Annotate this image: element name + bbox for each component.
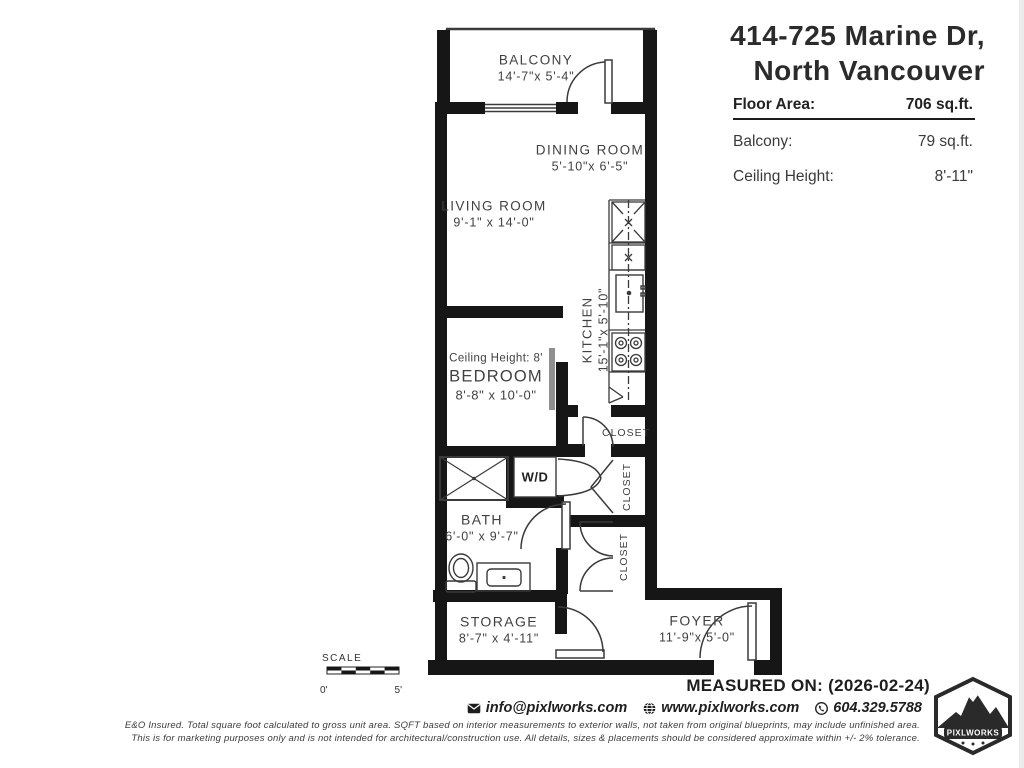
shower xyxy=(440,457,508,500)
room-label-bedroom: Ceiling Height: 8' BEDROOM 8'-8" x 10'-0… xyxy=(449,351,543,404)
room-label-kitchen: KITCHEN 15'-1"x 5'-10" xyxy=(579,288,612,373)
logo-text: PIXLWORKS xyxy=(947,729,1000,738)
scale-label: SCALE xyxy=(318,653,404,664)
floor-area-label: Floor Area: xyxy=(733,96,815,114)
room-name: KITCHEN xyxy=(579,288,596,373)
closet-label-1: CLOSET xyxy=(602,427,650,439)
phone-icon xyxy=(815,702,828,715)
ceiling-height-label: Ceiling Height: xyxy=(733,168,834,186)
closet-label-2: CLOSET xyxy=(621,463,633,511)
ceiling-note: Ceiling Height: 8' xyxy=(449,351,543,367)
room-label-balcony: BALCONY 14'-7"x 5'-4" xyxy=(498,52,575,85)
website-item: www.pixlworks.com xyxy=(643,700,799,716)
room-name: LIVING ROOM xyxy=(441,198,546,215)
room-name: DINING ROOM xyxy=(536,142,644,159)
room-name: BALCONY xyxy=(498,52,575,69)
floor-area-value: 706 sq.ft. xyxy=(906,96,973,114)
floor-area-row: Floor Area: 706 sq.ft. xyxy=(733,92,975,120)
bath-door-arc xyxy=(521,504,566,549)
room-name: STORAGE xyxy=(459,614,539,631)
room-dims: 8'-7" x 4'-11" xyxy=(459,631,539,647)
scale-start: 0' xyxy=(320,685,327,696)
window xyxy=(485,105,556,112)
room-dims: 14'-7"x 5'-4" xyxy=(498,69,575,85)
room-dims: 8'-8" x 10'-0" xyxy=(449,388,543,404)
room-dims: 11'-9"x 5'-0" xyxy=(659,630,735,646)
entry-door-leaf xyxy=(748,603,756,660)
area-summary-table: Floor Area: 706 sq.ft. Balcony: 79 sq.ft… xyxy=(733,92,975,190)
balcony-area-row: Balcony: 79 sq.ft. xyxy=(733,129,975,155)
ceiling-height-value: 8'-11" xyxy=(935,168,973,186)
email-item: info@pixlworks.com xyxy=(467,700,627,716)
title-line-2: North Vancouver xyxy=(730,53,985,88)
bath-door-leaf xyxy=(562,502,570,549)
disclaimer-line-1: E&O Insured. Total square foot calculate… xyxy=(125,720,920,731)
page-edge xyxy=(1019,0,1024,768)
scale-indicator: SCALE 0' 5' xyxy=(318,653,404,696)
website-text: www.pixlworks.com xyxy=(661,700,799,716)
ceiling-height-row: Ceiling Height: 8'-11" xyxy=(733,164,975,190)
fridge xyxy=(616,275,645,312)
measured-on-text: MEASURED ON: (2026-02-24) xyxy=(686,676,930,696)
contact-row: info@pixlworks.com www.pixlworks.com 604… xyxy=(467,700,922,716)
room-label-dining: DINING ROOM 5'-10"x 6'-5" xyxy=(536,142,644,175)
email-text: info@pixlworks.com xyxy=(486,700,627,716)
room-dims: 5'-10"x 6'-5" xyxy=(536,159,644,175)
phone-text: 604.329.5788 xyxy=(833,700,922,716)
email-icon xyxy=(467,703,481,714)
scale-end: 5' xyxy=(395,685,402,696)
closet-label-3: CLOSET xyxy=(618,533,630,581)
room-name: BATH xyxy=(445,512,518,529)
room-label-foyer: FOYER 11'-9"x 5'-0" xyxy=(659,613,735,646)
kitchen-counter xyxy=(609,200,645,403)
disclaimer-line-2: This is for marketing purposes only and … xyxy=(131,733,920,744)
room-dims: 6'-0" x 9'-7" xyxy=(445,529,518,545)
room-name: FOYER xyxy=(659,613,735,630)
sliding-door xyxy=(549,348,555,410)
phone-item: 604.329.5788 xyxy=(815,700,922,716)
page-title: 414-725 Marine Dr, North Vancouver xyxy=(730,18,985,88)
toilet xyxy=(446,554,476,592)
balcony-door-leaf xyxy=(605,60,612,103)
room-label-bath: BATH 6'-0" x 9'-7" xyxy=(445,512,518,545)
room-label-storage: STORAGE 8'-7" x 4'-11" xyxy=(459,614,539,647)
pixlworks-logo: PIXLWORKS xyxy=(928,676,1018,763)
room-label-living: LIVING ROOM 9'-1" x 14'-0" xyxy=(441,198,546,231)
balcony-area-value: 79 sq.ft. xyxy=(918,133,973,151)
globe-icon xyxy=(643,702,656,715)
room-name: BEDROOM xyxy=(449,367,543,388)
wd-label: W/D xyxy=(522,470,549,485)
balcony-edge-line xyxy=(446,29,655,35)
title-line-1: 414-725 Marine Dr, xyxy=(730,18,985,53)
room-dims: 9'-1" x 14'-0" xyxy=(441,215,546,231)
sink-vanity xyxy=(477,563,530,591)
room-dims: 15'-1"x 5'-10" xyxy=(596,288,612,373)
storage-door-leaf xyxy=(556,650,604,658)
balcony-area-label: Balcony: xyxy=(733,133,792,151)
